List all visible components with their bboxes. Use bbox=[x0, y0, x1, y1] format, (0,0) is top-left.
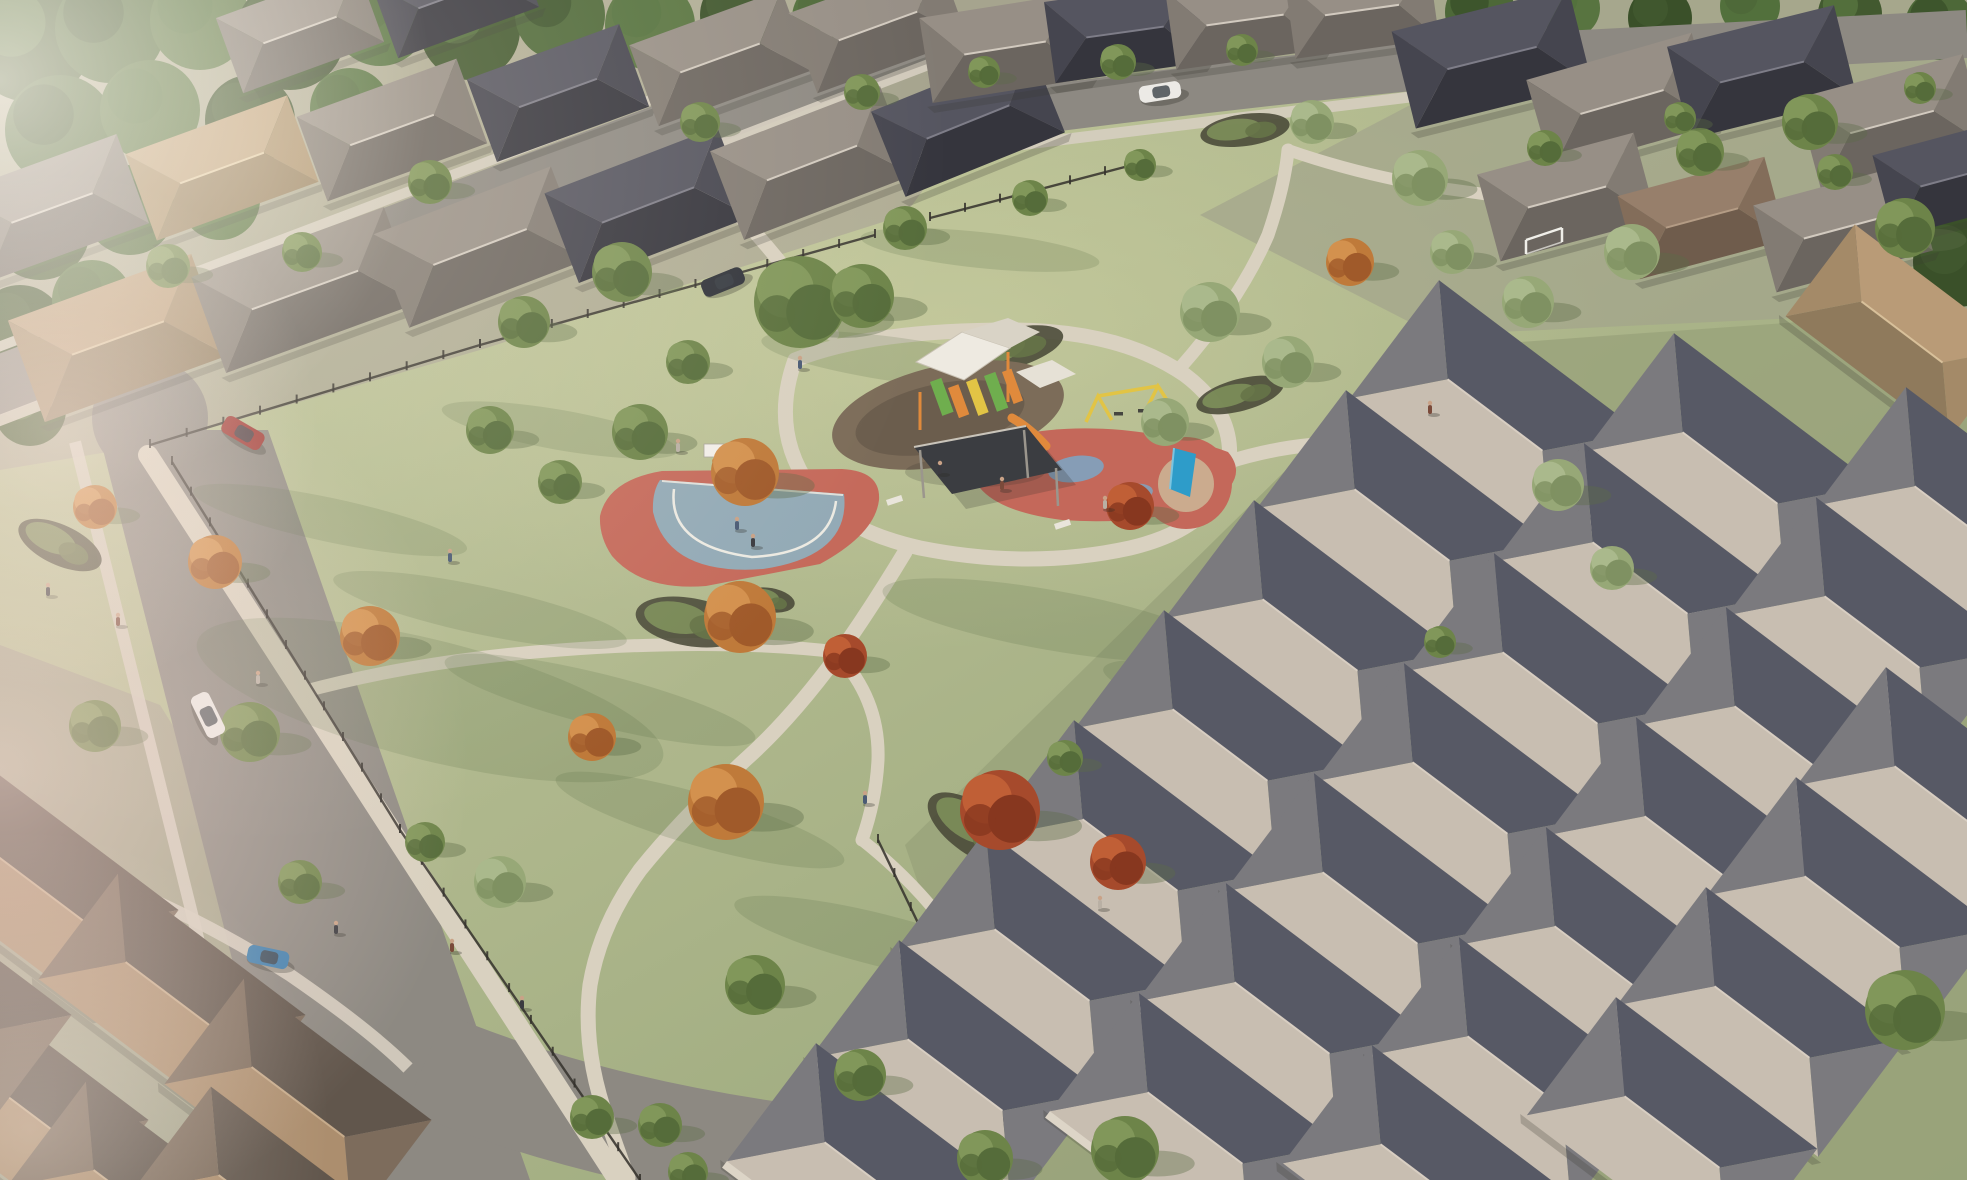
tree-canopy-edge bbox=[1093, 858, 1115, 880]
tree-canopy-edge bbox=[1265, 358, 1286, 379]
tree-canopy-edge bbox=[1328, 258, 1347, 277]
pedestrian-body bbox=[938, 465, 942, 474]
tree-canopy-edge bbox=[1906, 86, 1919, 99]
aerial-render-viewport bbox=[0, 0, 1967, 1180]
tree-canopy-edge bbox=[1395, 174, 1417, 196]
pedestrian-body bbox=[1098, 900, 1102, 909]
pedestrian-head bbox=[1000, 477, 1004, 481]
tree-canopy-edge bbox=[1785, 118, 1807, 140]
pedestrian-body bbox=[450, 943, 454, 952]
pedestrian-body bbox=[1103, 500, 1107, 509]
tree-canopy-edge bbox=[1869, 1004, 1901, 1036]
pedestrian-body bbox=[520, 1000, 524, 1009]
tree-canopy-edge bbox=[1819, 169, 1833, 183]
tree-canopy-edge bbox=[825, 653, 843, 671]
tree-canopy-edge bbox=[1102, 59, 1116, 73]
tree-canopy-edge bbox=[1183, 308, 1207, 332]
tree-canopy-edge bbox=[1505, 298, 1526, 319]
pedestrian-body bbox=[863, 795, 867, 804]
tree-canopy-edge bbox=[572, 1114, 590, 1132]
tree-canopy-edge bbox=[640, 1122, 658, 1140]
tree-canopy-edge bbox=[728, 981, 752, 1005]
tree-canopy-edge bbox=[1592, 565, 1610, 583]
tree-canopy-edge bbox=[692, 796, 722, 826]
tree-canopy-edge bbox=[1228, 48, 1241, 61]
tree-canopy-edge bbox=[964, 804, 996, 836]
tree-canopy-edge bbox=[837, 1071, 858, 1092]
pedestrian-head bbox=[1428, 401, 1432, 405]
tree-canopy-edge bbox=[1878, 224, 1902, 248]
pedestrian-head bbox=[1098, 896, 1102, 900]
tree-canopy-edge bbox=[1049, 755, 1063, 769]
swing-seat bbox=[1114, 412, 1123, 416]
tree-canopy-edge bbox=[1014, 195, 1028, 209]
pedestrian-head bbox=[520, 996, 524, 1000]
tree-canopy-edge bbox=[477, 878, 498, 899]
pedestrian-head bbox=[863, 791, 867, 795]
tree-canopy-edge bbox=[1666, 116, 1679, 129]
neighbourhood-park-render bbox=[0, 0, 1967, 1180]
tree-canopy-edge bbox=[1094, 1145, 1121, 1172]
tree-canopy-edge bbox=[1529, 145, 1543, 159]
pedestrian-head bbox=[938, 461, 942, 465]
tree-canopy-edge bbox=[1678, 148, 1697, 167]
tree-canopy-edge bbox=[1143, 418, 1162, 437]
tree-canopy-edge bbox=[1432, 249, 1450, 267]
tree-canopy-edge bbox=[960, 1154, 982, 1176]
tree-canopy-edge bbox=[1426, 640, 1439, 653]
pedestrian-body bbox=[1428, 405, 1432, 414]
tree-canopy-edge bbox=[1108, 502, 1127, 521]
pedestrian-body bbox=[1000, 481, 1004, 490]
pedestrian-head bbox=[1103, 496, 1107, 500]
pedestrian-head bbox=[450, 939, 454, 943]
tree-canopy-edge bbox=[1126, 163, 1139, 176]
tree-canopy-edge bbox=[1292, 119, 1310, 137]
tree-canopy-edge bbox=[1535, 481, 1556, 502]
tree-canopy-edge bbox=[970, 70, 983, 83]
tree-canopy-edge bbox=[1607, 248, 1629, 270]
